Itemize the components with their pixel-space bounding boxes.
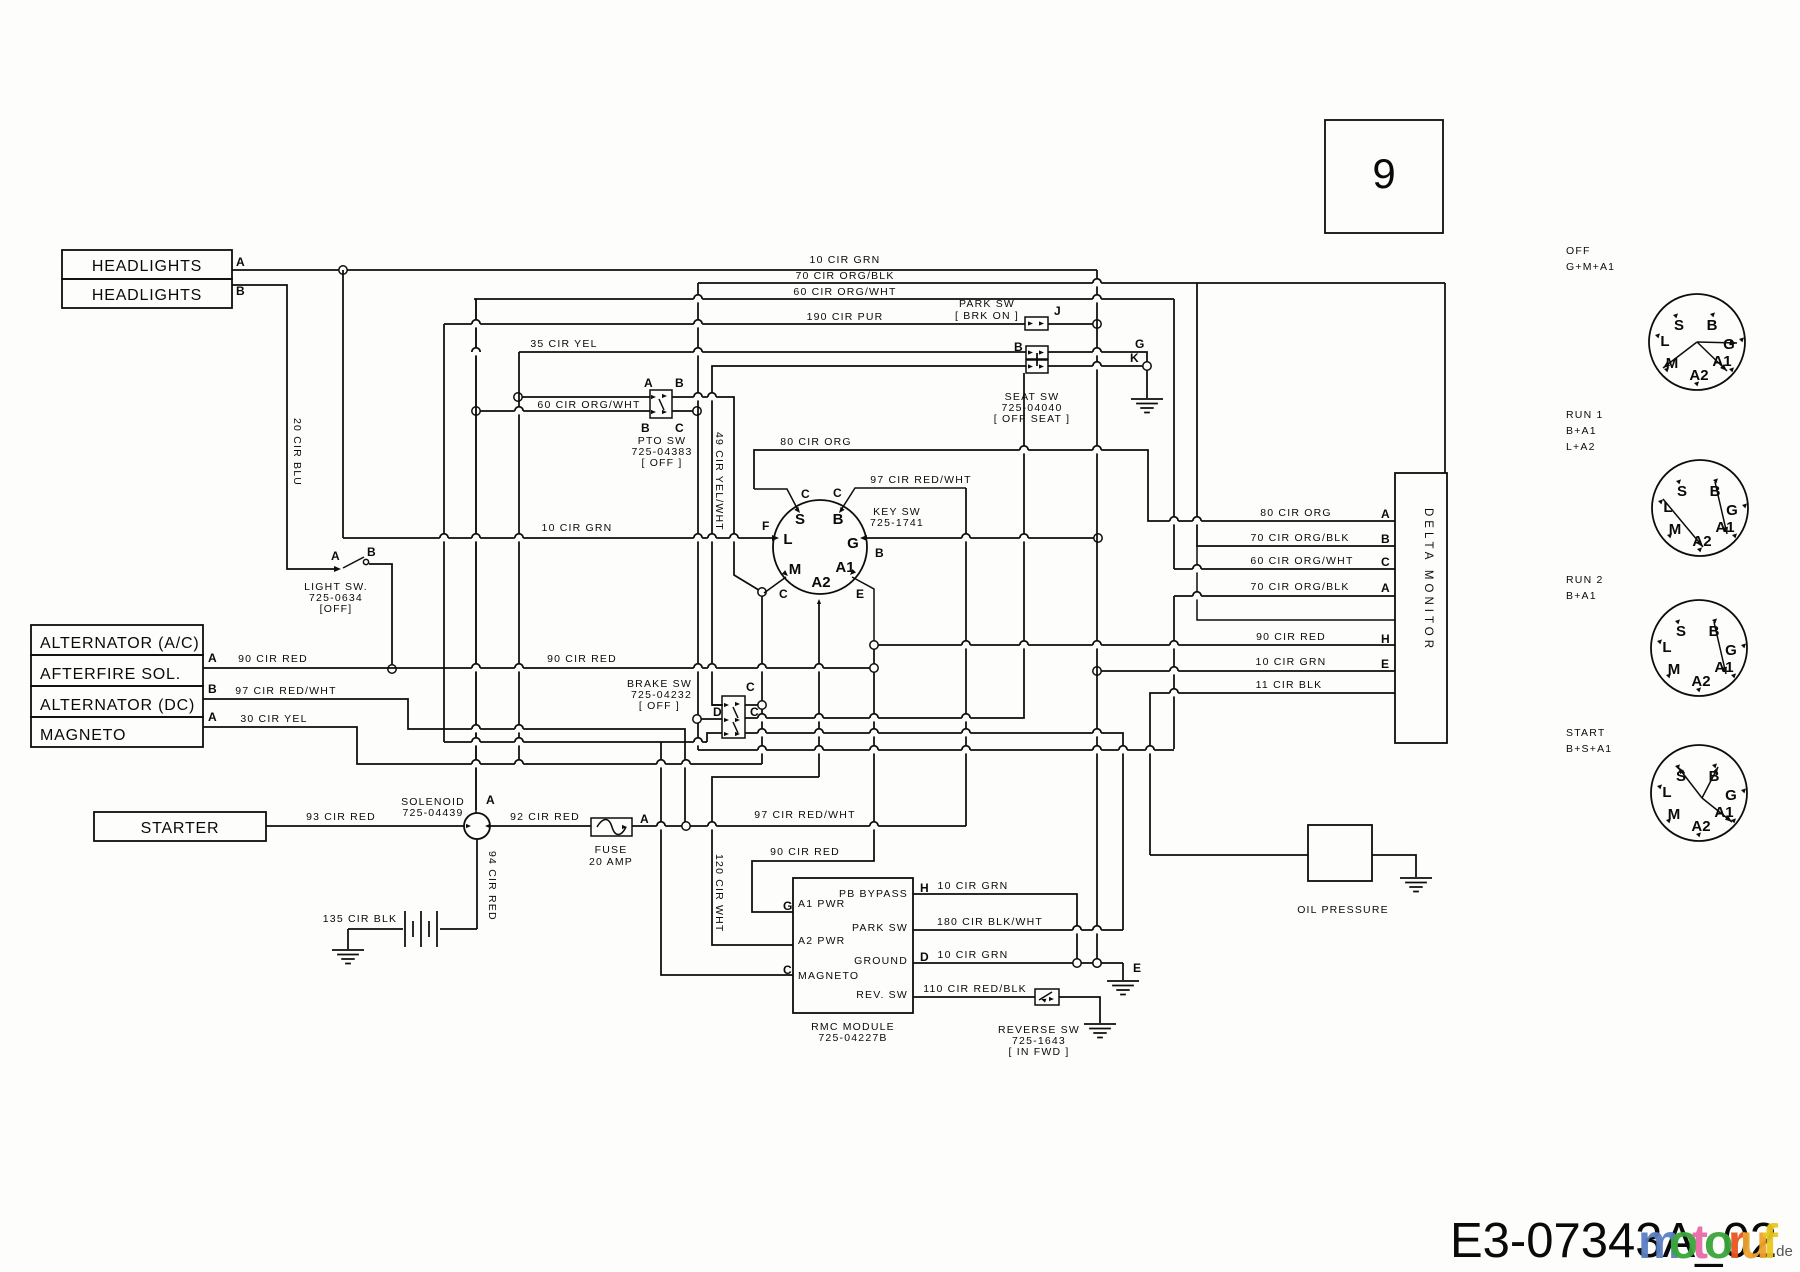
svg-text:C: C xyxy=(801,487,810,501)
svg-text:A: A xyxy=(208,651,217,665)
svg-text:DELTA MONITOR: DELTA MONITOR xyxy=(1422,508,1434,652)
svg-text:60 CIR ORG/WHT: 60 CIR ORG/WHT xyxy=(537,399,640,411)
svg-text:725-04227B: 725-04227B xyxy=(818,1032,887,1044)
svg-text:A: A xyxy=(1381,507,1390,521)
svg-text:20 AMP: 20 AMP xyxy=(589,856,633,868)
svg-text:10 CIR GRN: 10 CIR GRN xyxy=(810,254,881,266)
svg-text:135 CIR BLK: 135 CIR BLK xyxy=(323,913,397,925)
svg-text:M: M xyxy=(789,561,802,578)
svg-text:D: D xyxy=(920,950,929,964)
svg-text:90 CIR RED: 90 CIR RED xyxy=(547,653,617,665)
svg-text:G: G xyxy=(1135,337,1144,351)
svg-text:A2: A2 xyxy=(1692,533,1711,550)
svg-text:94 CIR RED: 94 CIR RED xyxy=(486,851,498,921)
svg-text:92 CIR RED: 92 CIR RED xyxy=(510,811,580,823)
svg-text:A2 PWR: A2 PWR xyxy=(798,935,845,947)
svg-text:20 CIR BLU: 20 CIR BLU xyxy=(291,418,303,486)
svg-text:A: A xyxy=(208,710,217,724)
svg-text:REV. SW: REV. SW xyxy=(856,989,908,1001)
svg-text:G+M+A1: G+M+A1 xyxy=(1566,261,1615,273)
svg-text:[ OFF SEAT ]: [ OFF SEAT ] xyxy=(994,413,1070,425)
svg-text:RUN 1: RUN 1 xyxy=(1566,409,1604,421)
svg-text:10 CIR GRN: 10 CIR GRN xyxy=(542,522,613,534)
svg-text:.de: .de xyxy=(1772,1243,1793,1260)
svg-text:S: S xyxy=(1676,623,1686,640)
svg-text:[ OFF ]: [ OFF ] xyxy=(639,700,680,712)
svg-text:35 CIR YEL: 35 CIR YEL xyxy=(530,338,597,350)
svg-text:70 CIR ORG/BLK: 70 CIR ORG/BLK xyxy=(1250,581,1349,593)
svg-text:9: 9 xyxy=(1372,150,1395,197)
svg-text:ALTERNATOR (A/C): ALTERNATOR (A/C) xyxy=(40,635,199,652)
svg-text:B+A1: B+A1 xyxy=(1566,590,1597,602)
svg-text:OFF: OFF xyxy=(1566,245,1591,257)
svg-text:A: A xyxy=(1381,581,1390,595)
svg-text:10 CIR GRN: 10 CIR GRN xyxy=(938,949,1009,961)
svg-text:AFTERFIRE SOL.: AFTERFIRE SOL. xyxy=(40,666,181,683)
svg-text:725-1741: 725-1741 xyxy=(870,517,924,529)
svg-text:J: J xyxy=(1054,304,1061,318)
svg-text:A: A xyxy=(331,549,340,563)
svg-text:[ OFF ]: [ OFF ] xyxy=(641,457,682,469)
svg-text:A: A xyxy=(644,376,653,390)
svg-text:70 CIR ORG/BLK: 70 CIR ORG/BLK xyxy=(795,270,894,282)
svg-text:D: D xyxy=(713,705,722,719)
svg-text:110 CIR RED/BLK: 110 CIR RED/BLK xyxy=(923,983,1027,995)
svg-text:MAGNETO: MAGNETO xyxy=(40,727,126,744)
svg-text:B: B xyxy=(675,376,684,390)
svg-text:MAGNETO: MAGNETO xyxy=(798,970,859,982)
svg-text:S: S xyxy=(795,511,805,528)
svg-text:B: B xyxy=(833,511,844,528)
svg-text:S: S xyxy=(1674,317,1684,334)
svg-text:10 CIR GRN: 10 CIR GRN xyxy=(938,880,1009,892)
svg-text:PB BYPASS: PB BYPASS xyxy=(839,888,908,900)
svg-text:G: G xyxy=(847,535,859,552)
svg-text:E: E xyxy=(856,587,864,601)
svg-text:B: B xyxy=(1381,532,1390,546)
svg-text:60 CIR ORG/WHT: 60 CIR ORG/WHT xyxy=(793,286,896,298)
svg-text:93 CIR RED: 93 CIR RED xyxy=(306,811,376,823)
svg-text:60 CIR ORG/WHT: 60 CIR ORG/WHT xyxy=(1250,555,1353,567)
svg-text:97 CIR RED/WHT: 97 CIR RED/WHT xyxy=(870,474,971,486)
svg-text:S: S xyxy=(1677,483,1687,500)
svg-text:A: A xyxy=(640,812,649,826)
svg-text:70 CIR ORG/BLK: 70 CIR ORG/BLK xyxy=(1250,532,1349,544)
svg-text:L: L xyxy=(783,531,792,548)
svg-text:90 CIR RED: 90 CIR RED xyxy=(238,653,308,665)
svg-text:L: L xyxy=(1662,784,1671,801)
svg-text:E: E xyxy=(1381,657,1389,671)
svg-text:G: G xyxy=(1725,787,1737,804)
svg-text:B: B xyxy=(1014,340,1023,354)
svg-text:[ BRK ON ]: [ BRK ON ] xyxy=(955,310,1019,322)
svg-text:HEADLIGHTS: HEADLIGHTS xyxy=(92,287,202,304)
svg-text:80 CIR ORG: 80 CIR ORG xyxy=(1260,507,1332,519)
svg-text:B: B xyxy=(641,421,650,435)
svg-text:RUN 2: RUN 2 xyxy=(1566,574,1604,586)
svg-text:A2: A2 xyxy=(811,574,830,591)
svg-text:120 CIR WHT: 120 CIR WHT xyxy=(713,854,725,933)
svg-text:10 CIR GRN: 10 CIR GRN xyxy=(1256,656,1327,668)
svg-text:B: B xyxy=(208,682,217,696)
svg-text:HEADLIGHTS: HEADLIGHTS xyxy=(92,258,202,275)
svg-text:G: G xyxy=(783,899,792,913)
svg-text:FUSE: FUSE xyxy=(595,844,628,856)
svg-text:A2: A2 xyxy=(1689,367,1708,384)
svg-text:49 CIR YEL/WHT: 49 CIR YEL/WHT xyxy=(713,432,725,531)
svg-text:C: C xyxy=(779,587,788,601)
svg-text:A: A xyxy=(486,793,495,807)
svg-text:G: G xyxy=(1726,502,1738,519)
svg-text:B: B xyxy=(367,545,376,559)
svg-text:K: K xyxy=(1130,351,1139,365)
svg-text:GROUND: GROUND xyxy=(854,955,908,967)
svg-text:C: C xyxy=(746,680,755,694)
svg-text:ALTERNATOR (DC): ALTERNATOR (DC) xyxy=(40,697,195,714)
svg-text:L: L xyxy=(1662,639,1671,656)
svg-text:C: C xyxy=(833,486,842,500)
svg-text:H: H xyxy=(920,881,929,895)
svg-text:A2: A2 xyxy=(1691,818,1710,835)
svg-text:97 CIR RED/WHT: 97 CIR RED/WHT xyxy=(235,685,336,697)
svg-text:180 CIR BLK/WHT: 180 CIR BLK/WHT xyxy=(937,916,1043,928)
svg-text:G: G xyxy=(1725,642,1737,659)
svg-text:B: B xyxy=(1707,317,1718,334)
svg-text:30 CIR YEL: 30 CIR YEL xyxy=(240,713,307,725)
svg-text:90 CIR RED: 90 CIR RED xyxy=(1256,631,1326,643)
svg-text:80 CIR ORG: 80 CIR ORG xyxy=(780,436,852,448)
svg-text:A2: A2 xyxy=(1691,673,1710,690)
svg-text:725-04439: 725-04439 xyxy=(402,807,463,819)
svg-text:C: C xyxy=(1381,555,1390,569)
svg-text:97 CIR RED/WHT: 97 CIR RED/WHT xyxy=(754,809,855,821)
svg-text:PARK SW: PARK SW xyxy=(959,298,1015,310)
svg-text:[ IN FWD ]: [ IN FWD ] xyxy=(1009,1046,1070,1058)
svg-text:STARTER: STARTER xyxy=(141,820,220,837)
svg-text:H: H xyxy=(1381,632,1390,646)
svg-text:C: C xyxy=(783,963,792,977)
svg-text:B+A1: B+A1 xyxy=(1566,425,1597,437)
svg-text:START: START xyxy=(1566,727,1605,739)
svg-text:OIL PRESSURE: OIL PRESSURE xyxy=(1297,904,1389,916)
svg-text:B+S+A1: B+S+A1 xyxy=(1566,743,1612,755)
svg-text:B: B xyxy=(236,284,245,298)
svg-text:C: C xyxy=(675,421,684,435)
svg-text:L: L xyxy=(1660,333,1669,350)
svg-text:B: B xyxy=(875,546,884,560)
svg-text:A1: A1 xyxy=(1714,804,1733,821)
svg-text:L+A2: L+A2 xyxy=(1566,441,1596,453)
svg-text:PARK SW: PARK SW xyxy=(852,922,908,934)
svg-text:F: F xyxy=(762,519,769,533)
svg-text:11 CIR BLK: 11 CIR BLK xyxy=(1256,679,1323,691)
svg-text:A: A xyxy=(236,255,245,269)
svg-text:G: G xyxy=(1723,336,1735,353)
svg-text:90 CIR RED: 90 CIR RED xyxy=(770,846,840,858)
svg-text:E: E xyxy=(1133,961,1141,975)
svg-text:[OFF]: [OFF] xyxy=(320,603,353,615)
svg-text:190 CIR PUR: 190 CIR PUR xyxy=(807,311,884,323)
